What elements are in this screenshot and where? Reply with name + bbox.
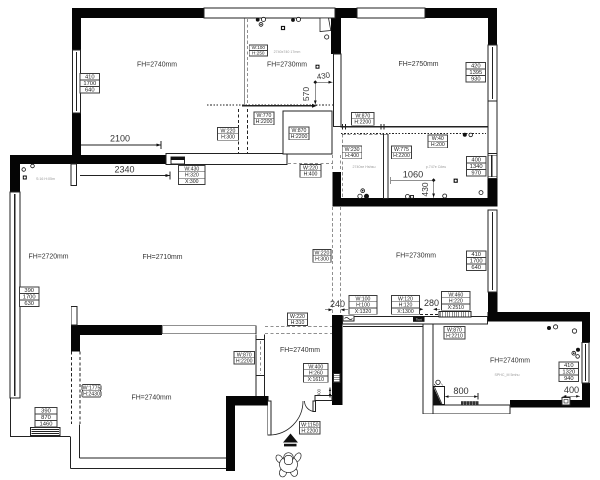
svg-text:W:1775: W:1775 — [83, 385, 101, 391]
svg-text:W:230: W:230 — [345, 147, 360, 153]
svg-text:X:300: X:300 — [185, 179, 199, 185]
svg-text:H:2210: H:2210 — [446, 334, 463, 340]
svg-text:FH=2740mm: FH=2740mm — [280, 347, 320, 354]
svg-text:FH=2730mm: FH=2730mm — [267, 62, 307, 69]
svg-text:FH=2720mm: FH=2720mm — [28, 254, 68, 261]
svg-text:2740xe Hshsu: 2740xe Hshsu — [353, 165, 376, 169]
svg-text:p.747e C#eu: p.747e C#eu — [426, 165, 447, 169]
svg-text:W:1150: W:1150 — [301, 422, 319, 428]
svg-text:FH=2740mm: FH=2740mm — [490, 358, 530, 365]
svg-text:W:870: W:870 — [237, 352, 252, 358]
svg-text:H:2200: H:2200 — [291, 134, 308, 140]
svg-text:W:775: W:775 — [394, 147, 409, 153]
svg-text:930: 930 — [471, 77, 481, 83]
svg-text:S:16 H:05m: S:16 H:05m — [36, 177, 55, 181]
svg-text:H:300: H:300 — [221, 135, 235, 141]
svg-text:H:320: H:320 — [185, 173, 199, 179]
svg-text:W:770: W:770 — [257, 113, 272, 119]
svg-text:800: 800 — [453, 386, 468, 396]
svg-text:X:1300: X:1300 — [397, 309, 414, 315]
svg-text:FH=2730mm: FH=2730mm — [396, 253, 436, 260]
svg-text:W:220: W:220 — [303, 165, 318, 171]
svg-text:H:250: H:250 — [252, 51, 265, 56]
svg-text:H:120: H:120 — [399, 303, 413, 309]
svg-text:H:2430: H:2430 — [83, 392, 100, 398]
svg-text:FH=2740mm: FH=2740mm — [131, 395, 171, 402]
svg-text:H:400: H:400 — [304, 172, 318, 178]
svg-text:H:300: H:300 — [315, 257, 329, 263]
svg-text:W:220: W:220 — [290, 314, 305, 320]
svg-text:400: 400 — [317, 388, 322, 396]
svg-text:W:870: W:870 — [292, 128, 307, 134]
svg-text:570: 570 — [301, 87, 311, 101]
svg-text:W:40: W:40 — [432, 136, 444, 142]
svg-text:W:870: W:870 — [355, 113, 370, 119]
svg-text:W:400: W:400 — [308, 364, 323, 370]
svg-text:400: 400 — [564, 385, 579, 395]
svg-text:2740x740 17mm: 2740x740 17mm — [274, 50, 301, 54]
svg-text:970: 970 — [471, 171, 481, 177]
svg-text:W:220: W:220 — [221, 128, 236, 134]
svg-text:2100: 2100 — [110, 134, 130, 144]
svg-text:H:200: H:200 — [431, 142, 445, 148]
svg-text:W:430: W:430 — [184, 166, 199, 172]
svg-text:W:120: W:120 — [398, 296, 413, 302]
svg-text:2340: 2340 — [114, 165, 134, 175]
svg-text:W:220: W:220 — [315, 250, 330, 256]
svg-text:640: 640 — [85, 88, 95, 94]
svg-text:940: 940 — [564, 376, 574, 382]
svg-text:H:220: H:220 — [449, 299, 463, 305]
svg-text:H:100: H:100 — [356, 303, 370, 309]
svg-text:H:260: H:260 — [309, 371, 323, 377]
svg-text:FH=2710mm: FH=2710mm — [142, 254, 182, 261]
svg-text:W:100: W:100 — [356, 296, 371, 302]
svg-text:1060: 1060 — [403, 170, 423, 180]
svg-text:X:1320: X:1320 — [355, 309, 372, 315]
svg-text:430: 430 — [420, 182, 430, 196]
svg-text:H:2200: H:2200 — [354, 120, 371, 126]
svg-text:H:400: H:400 — [345, 153, 359, 159]
svg-text:1460: 1460 — [40, 422, 53, 428]
svg-text:W:460: W:460 — [448, 292, 463, 298]
svg-text:H:310: H:310 — [291, 320, 305, 326]
svg-text:H:2200: H:2200 — [301, 429, 318, 435]
svg-text:W:100: W:100 — [252, 45, 266, 50]
svg-text:X:1610: X:1610 — [308, 377, 325, 383]
svg-text:Tout: Tout — [416, 318, 422, 322]
svg-text:280: 280 — [424, 298, 439, 308]
svg-text:640: 640 — [471, 265, 481, 271]
svg-text:H:2200: H:2200 — [236, 359, 253, 365]
svg-text:W:870: W:870 — [447, 327, 462, 333]
svg-text:240: 240 — [330, 299, 345, 309]
svg-text:SPHC_M 5mhu: SPHC_M 5mhu — [495, 373, 520, 377]
svg-text:X:2510: X:2510 — [448, 305, 465, 311]
svg-text:FH=2750mm: FH=2750mm — [398, 61, 438, 68]
svg-text:630: 630 — [24, 301, 34, 307]
svg-text:FH=2740mm: FH=2740mm — [137, 62, 177, 69]
svg-text:H:2200: H:2200 — [256, 119, 273, 125]
svg-text:H:2200: H:2200 — [393, 153, 410, 159]
